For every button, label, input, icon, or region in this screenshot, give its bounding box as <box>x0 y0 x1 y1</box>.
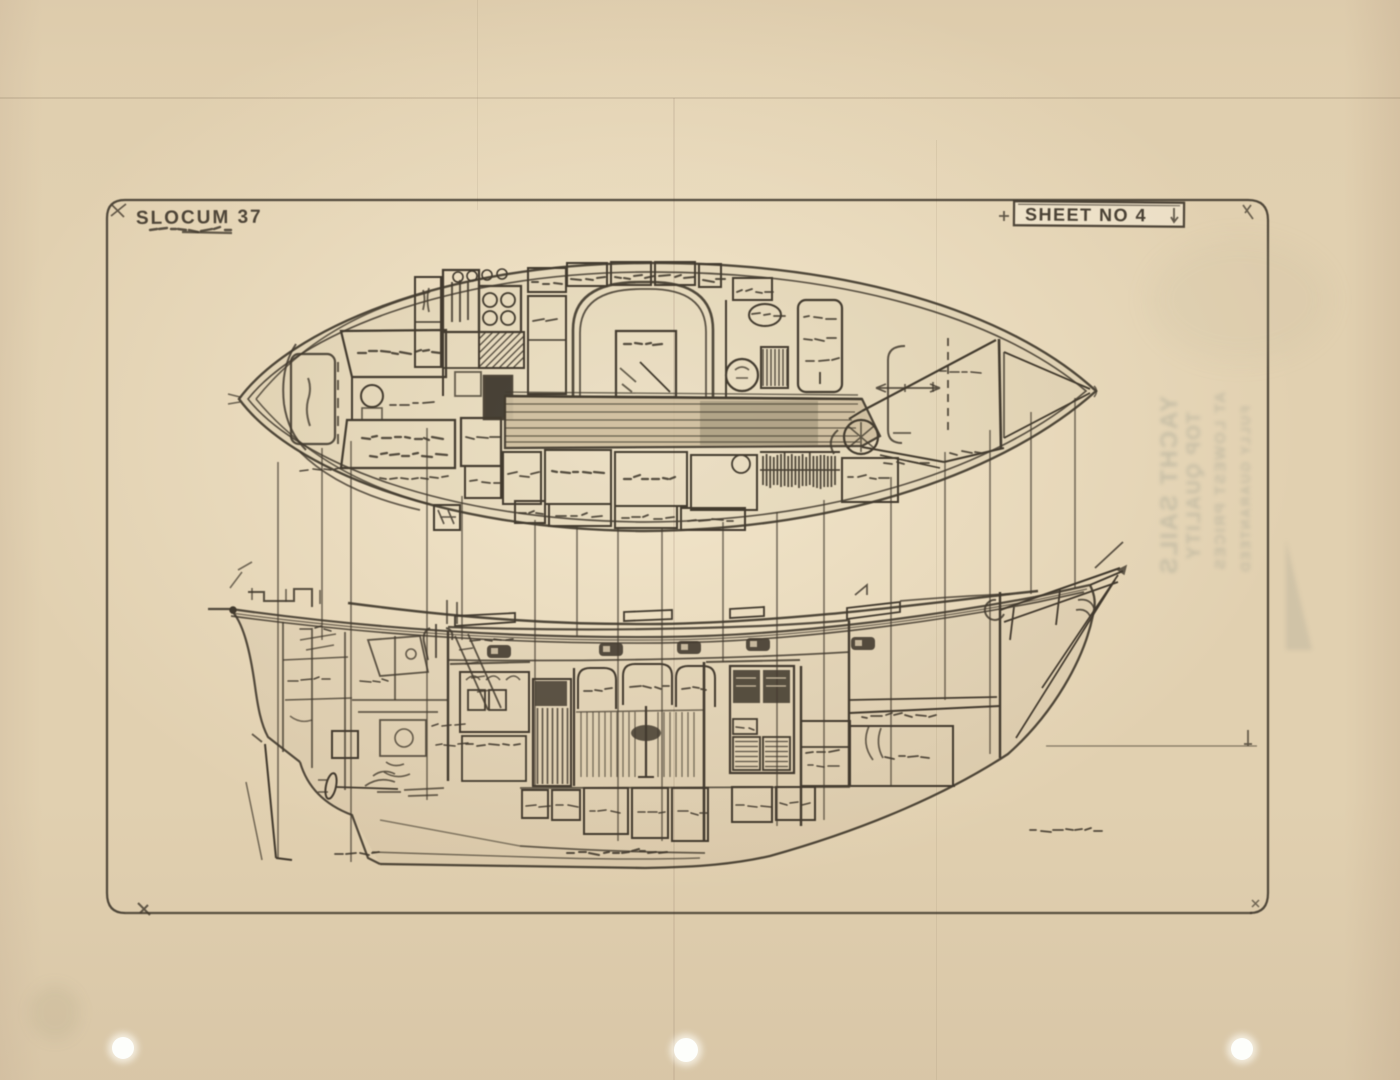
svg-text:SHEET NO 4: SHEET NO 4 <box>1025 204 1147 225</box>
svg-text:SLOCUM 37: SLOCUM 37 <box>136 207 263 229</box>
